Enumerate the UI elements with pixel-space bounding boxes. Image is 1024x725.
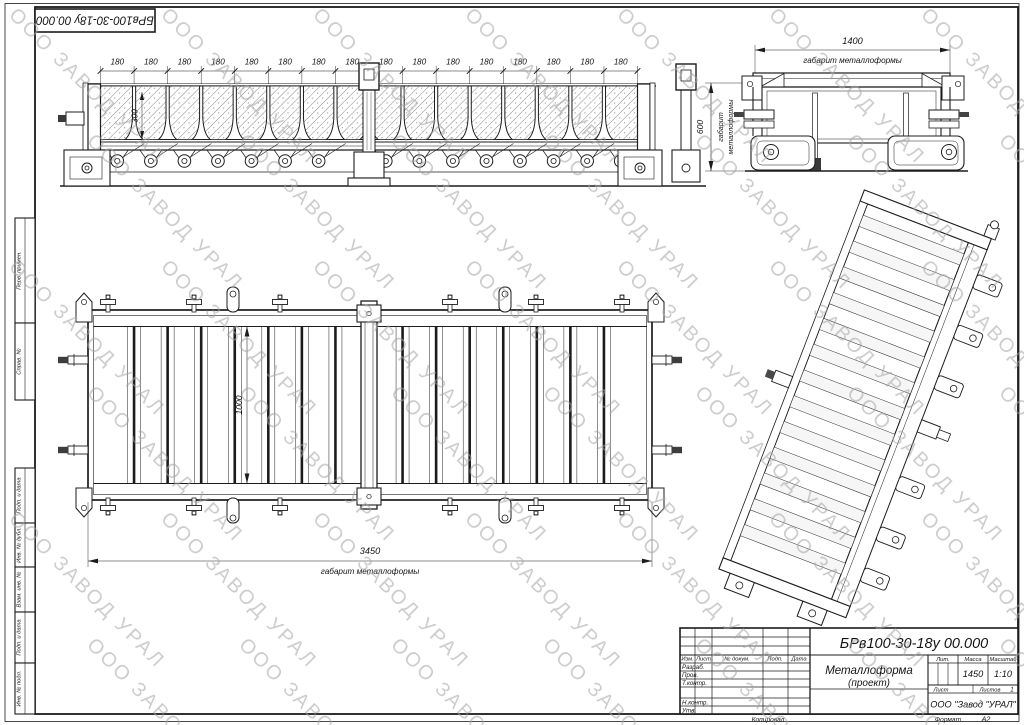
edge-clamp (273, 506, 288, 511)
dim-180-label: 180 (144, 58, 158, 67)
side-bolt (58, 447, 68, 453)
edge-clamp (529, 300, 544, 305)
corner-stamp-number: БРв100-30-18у 00.000 (36, 14, 154, 26)
iso-bracket (895, 476, 926, 500)
row-prov: Пров. (682, 672, 698, 679)
side-bolt (672, 357, 682, 363)
dim-180-label: 180 (480, 58, 494, 67)
mass-label: Масса (964, 657, 982, 663)
iso-bracket (876, 526, 907, 550)
sheets-label: Листов (978, 688, 1000, 694)
sheets-value: 1 (1010, 687, 1013, 694)
edge-clamp (273, 300, 288, 305)
dim-180-label: 180 (580, 58, 594, 67)
side-bolt (672, 447, 682, 453)
edge-clamp (615, 300, 630, 305)
sheet-label: Лист (933, 688, 949, 694)
lit-label: Лит. (935, 657, 950, 663)
dim-180-label: 180 (446, 58, 460, 67)
watermark-text: ООО ЗАВОД УРАЛ (538, 634, 703, 725)
dim-180-label: 180 (312, 58, 326, 67)
row-tkontr: Т.контр. (682, 680, 707, 687)
wheel (514, 155, 527, 168)
dim-180-label: 180 (278, 58, 292, 67)
col-data: Дата (790, 657, 807, 663)
bolt-head (959, 112, 969, 117)
dim-180-label: 180 (245, 58, 259, 67)
bolt-head (58, 115, 66, 122)
wheel (480, 155, 493, 168)
row-razrab: Разраб. (682, 664, 704, 671)
row-utv: Утв. (681, 708, 696, 715)
drawing-canvas: Перв. примен.Справ. №Подп. и датаИнв. № … (0, 0, 1024, 725)
company-name: ООО "Завод "УРАЛ" (930, 700, 1016, 710)
frame-column-label: Взам. инв. № (17, 572, 23, 608)
dim-1400-label: 1400 (842, 36, 863, 46)
frame-column-label: Инв. № подл. (17, 671, 23, 707)
corner-stamp: БРв100-30-18у 00.000 (35, 9, 155, 32)
col-izm: Изм. (681, 657, 693, 663)
wheel (212, 155, 225, 168)
drawing-sheet: Перв. примен.Справ. №Подп. и датаИнв. № … (0, 0, 1024, 725)
frame-column-label: Справ. № (17, 348, 23, 374)
watermark-text: ООО ЗАВОД УРАЛ (234, 634, 399, 725)
iso-bracket (860, 567, 891, 591)
dim-180-label: 180 (547, 58, 561, 67)
watermark-text: ООО ЗАВОД УРАЛ (82, 634, 247, 725)
dim-180-label: 180 (614, 58, 628, 67)
frame-column-label: Подп. и дата (17, 619, 23, 656)
format-value: А2 (981, 715, 991, 724)
dim-180-label: 180 (178, 58, 192, 67)
mass-value: 1450 (963, 669, 984, 679)
edge-clamp (443, 300, 458, 305)
edge-clamp (101, 300, 116, 305)
edge-clamp (443, 506, 458, 511)
row-nkontr: Н.контр. (682, 700, 708, 707)
iso-bracket (934, 375, 965, 399)
watermark-text: ООО ЗАВОД УРАЛ (386, 634, 551, 725)
edge-clamp (101, 506, 116, 511)
dim-180-label: 180 (413, 58, 427, 67)
wheel (178, 155, 191, 168)
dim-180-label: 180 (110, 58, 124, 67)
scale-value: 1:10 (994, 669, 1013, 679)
side-bolt (58, 357, 68, 363)
